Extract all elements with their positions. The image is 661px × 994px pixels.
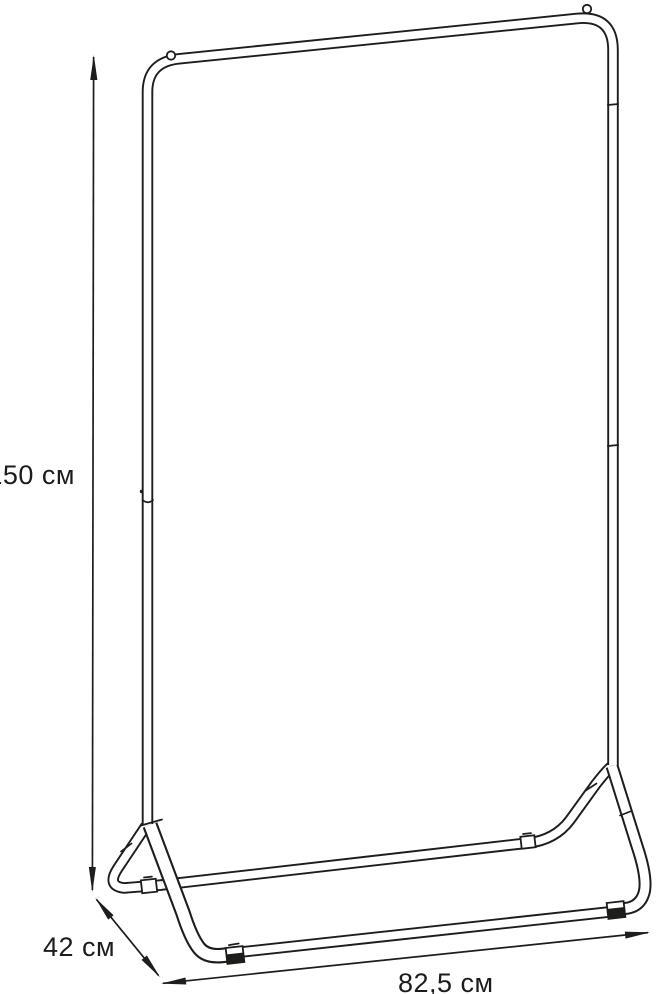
top-bar-left-knob	[167, 51, 175, 59]
front-rail-left-clamp	[225, 943, 244, 964]
back-rail-left-clamp	[141, 876, 158, 893]
base-back-rail	[161, 766, 612, 885]
height-dimension-label: 150 см	[0, 460, 75, 490]
width-arrow-left	[161, 978, 186, 985]
front-rail-right-clamp	[607, 901, 626, 919]
height-arrow-down	[89, 867, 96, 892]
back-rail-right-clamp	[520, 833, 536, 849]
dimension-diagram: 150 см 42 см 82,5 см	[0, 0, 661, 994]
right-leg-front-strut	[612, 766, 645, 910]
base-front-rail	[232, 911, 618, 953]
width-dimension-label: 82,5 см	[398, 968, 494, 994]
garment-rack-diagram: 150 см 42 см 82,5 см	[0, 0, 661, 994]
top-bar-right-knob	[583, 5, 591, 13]
main-frame	[148, 18, 614, 824]
depth-dimension: 42 см	[43, 898, 160, 978]
depth-dimension-label: 42 см	[43, 932, 115, 962]
depth-arrow-back	[95, 898, 113, 920]
tube-joint-seams	[121, 104, 632, 852]
width-arrow-right	[625, 932, 650, 939]
height-dimension: 150 см	[0, 55, 97, 892]
height-arrow-up	[90, 55, 97, 80]
depth-arrow-front	[142, 956, 161, 978]
